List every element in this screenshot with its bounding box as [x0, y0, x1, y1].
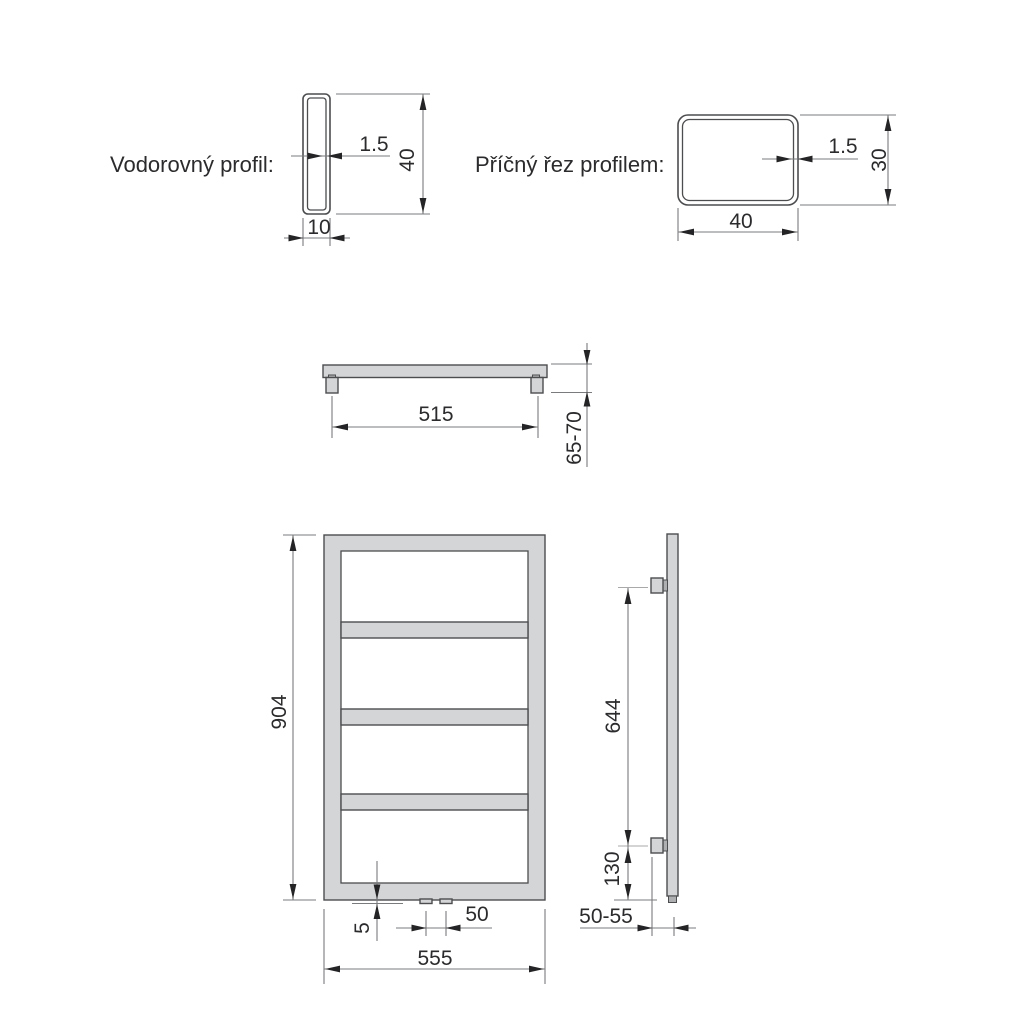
side-view-section: 644 130 50-55	[579, 534, 696, 936]
arrowhead	[584, 350, 591, 365]
arrowhead	[625, 830, 632, 845]
arrowhead	[420, 95, 427, 110]
dim-515-value: 515	[418, 403, 453, 426]
arrowhead	[638, 925, 653, 932]
rung-bar	[341, 622, 528, 638]
arrowhead	[290, 884, 297, 899]
dim-total-height: 904	[268, 535, 316, 900]
arrowhead	[290, 536, 297, 551]
dim-wall-depth: 65-70	[551, 343, 592, 467]
dim-total-width: 555	[324, 909, 545, 984]
bottom-connection-stub	[669, 896, 677, 903]
dim-130-value: 130	[601, 851, 624, 886]
arrowhead	[412, 925, 427, 932]
arrowhead	[289, 235, 304, 242]
wall-bracket-right	[531, 378, 543, 394]
rung-bar	[341, 794, 528, 810]
technical-drawing-page: Vodorovný profil: 1.5 40 10	[0, 0, 1024, 1024]
dim-bottom-offset: 130	[601, 846, 657, 900]
front-view-section: 904 5 50 555	[268, 535, 545, 984]
arrowhead	[885, 116, 892, 131]
rung-bar	[341, 709, 528, 725]
arrowhead	[584, 392, 591, 407]
wall-bracket-lower	[651, 838, 663, 853]
cross-section-label: Příčný řez profilem:	[475, 152, 665, 177]
arrowhead	[374, 904, 381, 919]
dim-height-value: 40	[396, 148, 419, 171]
wall-bracket-upper	[651, 578, 663, 593]
connection-stub-right	[440, 899, 452, 904]
arrowhead	[330, 235, 345, 242]
dim-profile-width: 10	[284, 216, 350, 246]
arrowhead	[679, 229, 694, 236]
dim-depth-value: 65-70	[563, 411, 586, 465]
dim-width-value: 40	[729, 210, 752, 233]
arrowhead	[420, 198, 427, 213]
dim-connection-spacing: 50	[396, 903, 492, 936]
dim-5-value: 5	[351, 922, 374, 934]
arrowhead	[625, 884, 632, 899]
dim-width-value: 10	[307, 216, 330, 239]
dim-bracket-spacing: 515	[332, 396, 538, 438]
arrowhead	[446, 925, 461, 932]
dim-555-value: 555	[417, 947, 452, 970]
connection-stub-left	[420, 899, 432, 904]
dim-wall-value: 1.5	[359, 133, 388, 156]
arrowhead	[798, 156, 813, 163]
horizontal-profile-section: Vodorovný profil: 1.5 40 10	[110, 94, 430, 246]
dim-644-value: 644	[602, 698, 625, 733]
dim-50-55-value: 50-55	[579, 905, 633, 928]
dim-bracket-span: 644	[602, 588, 648, 847]
dim-904-value: 904	[268, 694, 291, 729]
dim-wall-value: 1.5	[828, 135, 857, 158]
dim-profile-height: 30	[800, 115, 896, 205]
top-view-section: 515 65-70	[323, 343, 592, 467]
arrowhead	[782, 229, 797, 236]
arrowhead	[625, 589, 632, 604]
radiator-top-bar	[323, 365, 547, 378]
dim-height-value: 30	[868, 148, 891, 171]
dim-50-value: 50	[465, 903, 488, 926]
wall-bracket-left	[326, 378, 338, 394]
arrowhead	[333, 424, 348, 431]
arrowhead	[885, 189, 892, 204]
horizontal-profile-label: Vodorovný profil:	[110, 152, 274, 177]
arrowhead	[529, 966, 544, 973]
arrowhead	[325, 966, 340, 973]
radiator-technical-drawing: Vodorovný profil: 1.5 40 10	[0, 0, 1024, 1024]
cross-section-section: Příčný řez profilem: 1.5 30 40	[475, 115, 896, 241]
arrowhead	[674, 925, 689, 932]
radiator-side-bar	[667, 534, 678, 896]
dim-profile-width: 40	[678, 208, 798, 241]
arrowhead	[625, 848, 632, 863]
arrowhead	[522, 424, 537, 431]
